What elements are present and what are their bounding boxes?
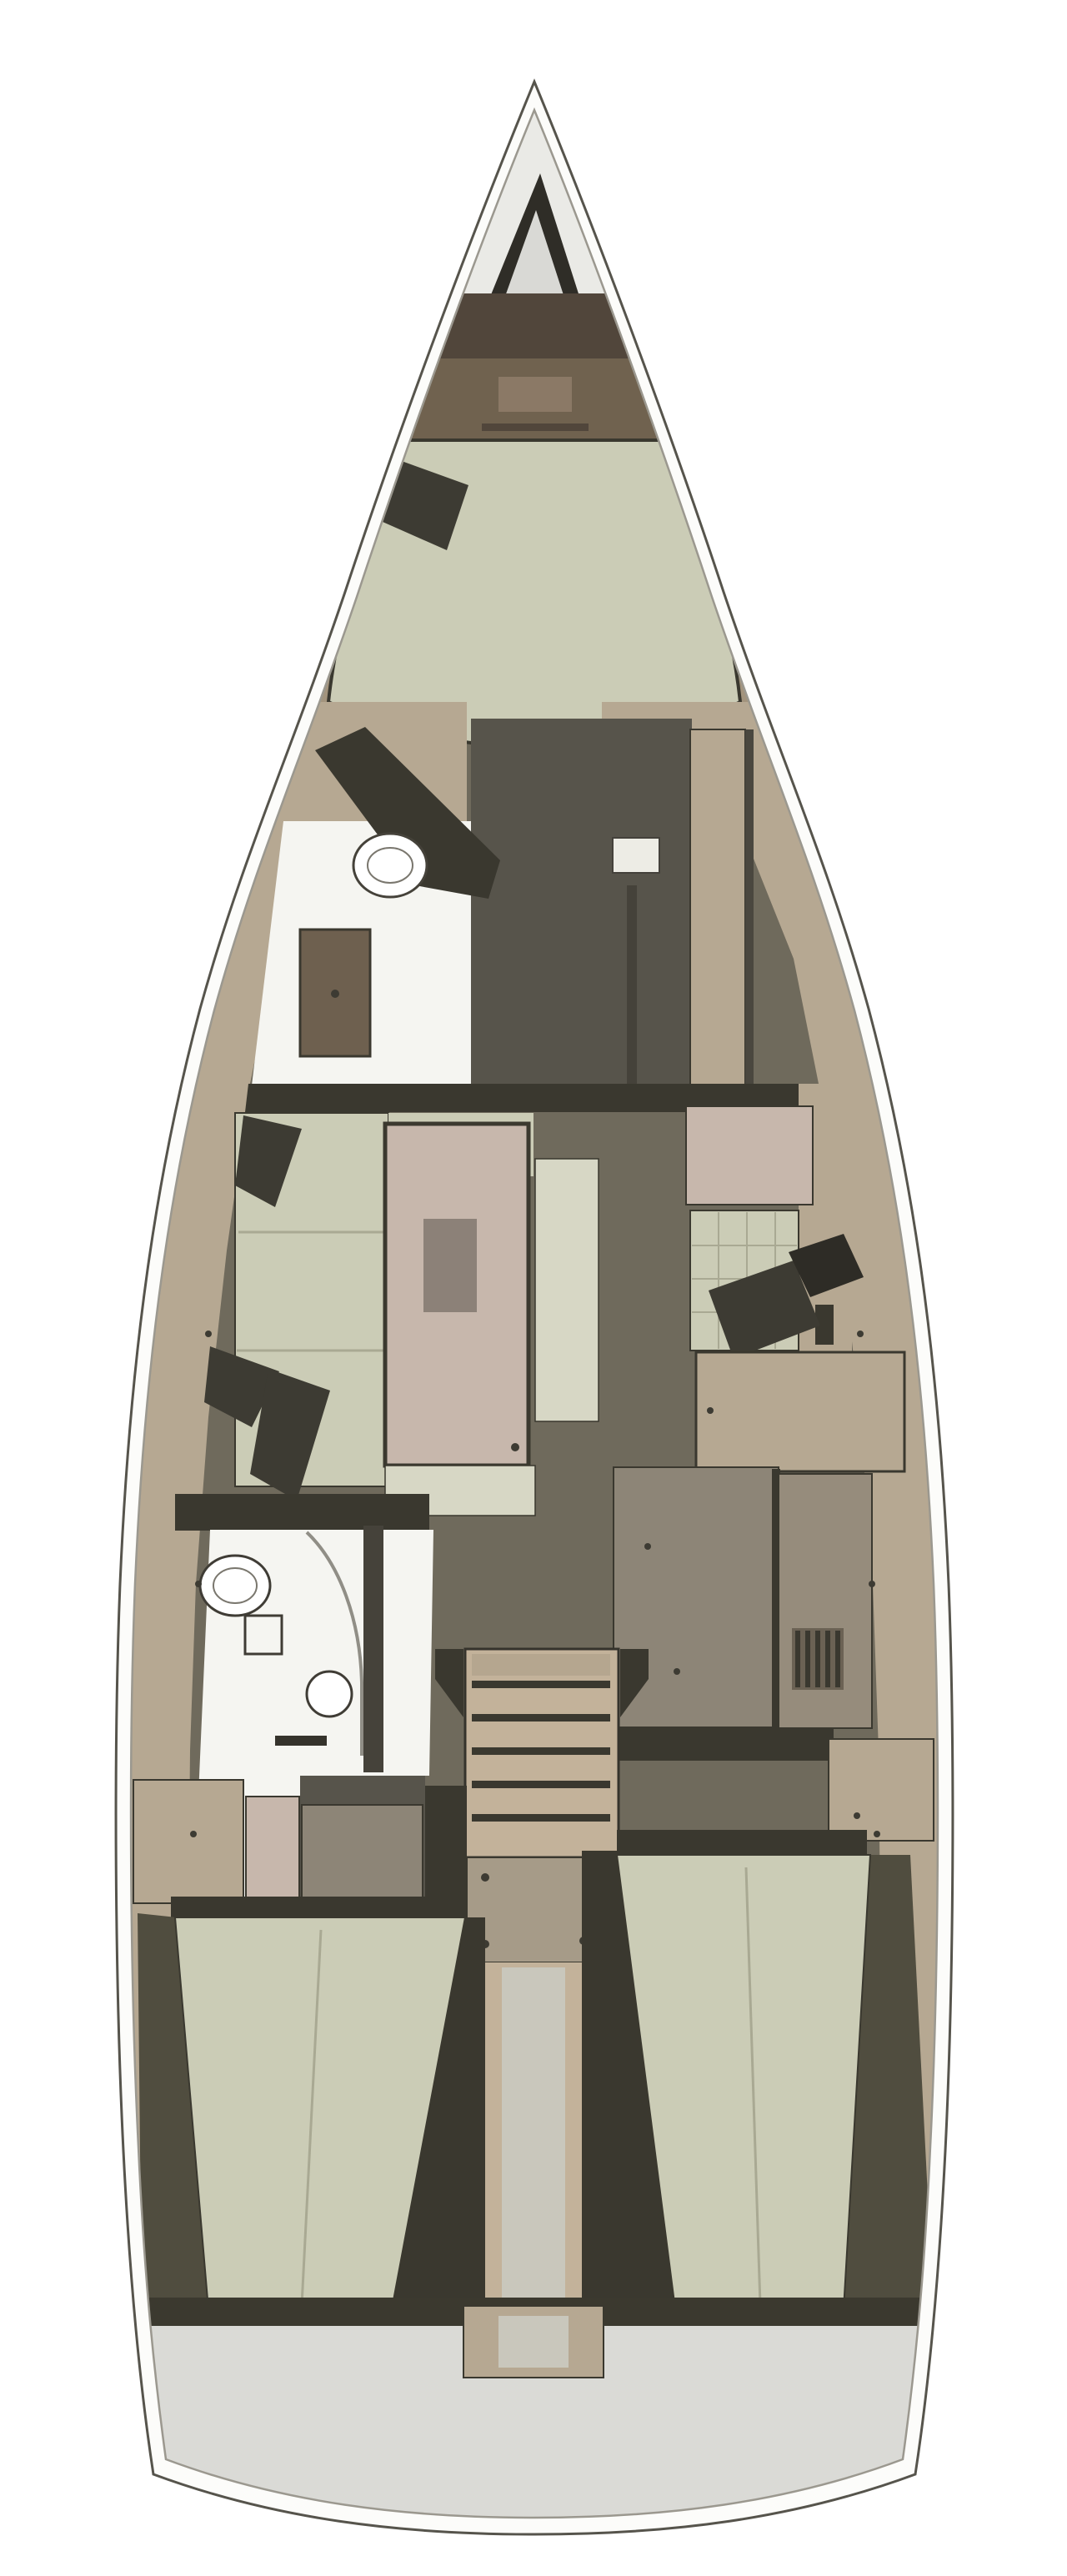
galley-unit bbox=[779, 1474, 872, 1728]
forward-head-sink bbox=[353, 834, 427, 897]
wardrobe-label bbox=[613, 838, 659, 873]
forward-walkway bbox=[471, 719, 692, 1087]
wardrobe bbox=[690, 729, 754, 1088]
port-aft-cabin-berth bbox=[138, 1897, 485, 2309]
galley-vent-grill bbox=[792, 1628, 844, 1690]
door-frame-seam bbox=[627, 885, 637, 1085]
galley-counter-aft bbox=[829, 1739, 934, 1841]
galley-footwell bbox=[612, 1727, 834, 1761]
aft-head-sink bbox=[307, 1671, 352, 1716]
aft-head-wall bbox=[363, 1526, 383, 1772]
saloon-table bbox=[385, 1124, 528, 1466]
navigation-backrest bbox=[686, 1106, 813, 1205]
aft-head-faucet bbox=[275, 1736, 327, 1746]
companionway-steps bbox=[435, 1649, 649, 1857]
aft-head-toilet bbox=[200, 1556, 270, 1616]
floor-plan-page bbox=[0, 0, 1067, 2576]
navigation-desk bbox=[696, 1352, 904, 1471]
saloon-chaise bbox=[535, 1159, 599, 1421]
starboard-aft-cabin-berth bbox=[582, 1830, 934, 2309]
floor-plan-svg bbox=[0, 0, 1067, 2576]
aft-head-top-wall bbox=[175, 1494, 429, 1531]
aft-head-vanity bbox=[133, 1780, 243, 1903]
port-aft-cabin-shelf bbox=[302, 1805, 423, 1898]
aft-head-vanity-2 bbox=[246, 1797, 299, 1905]
